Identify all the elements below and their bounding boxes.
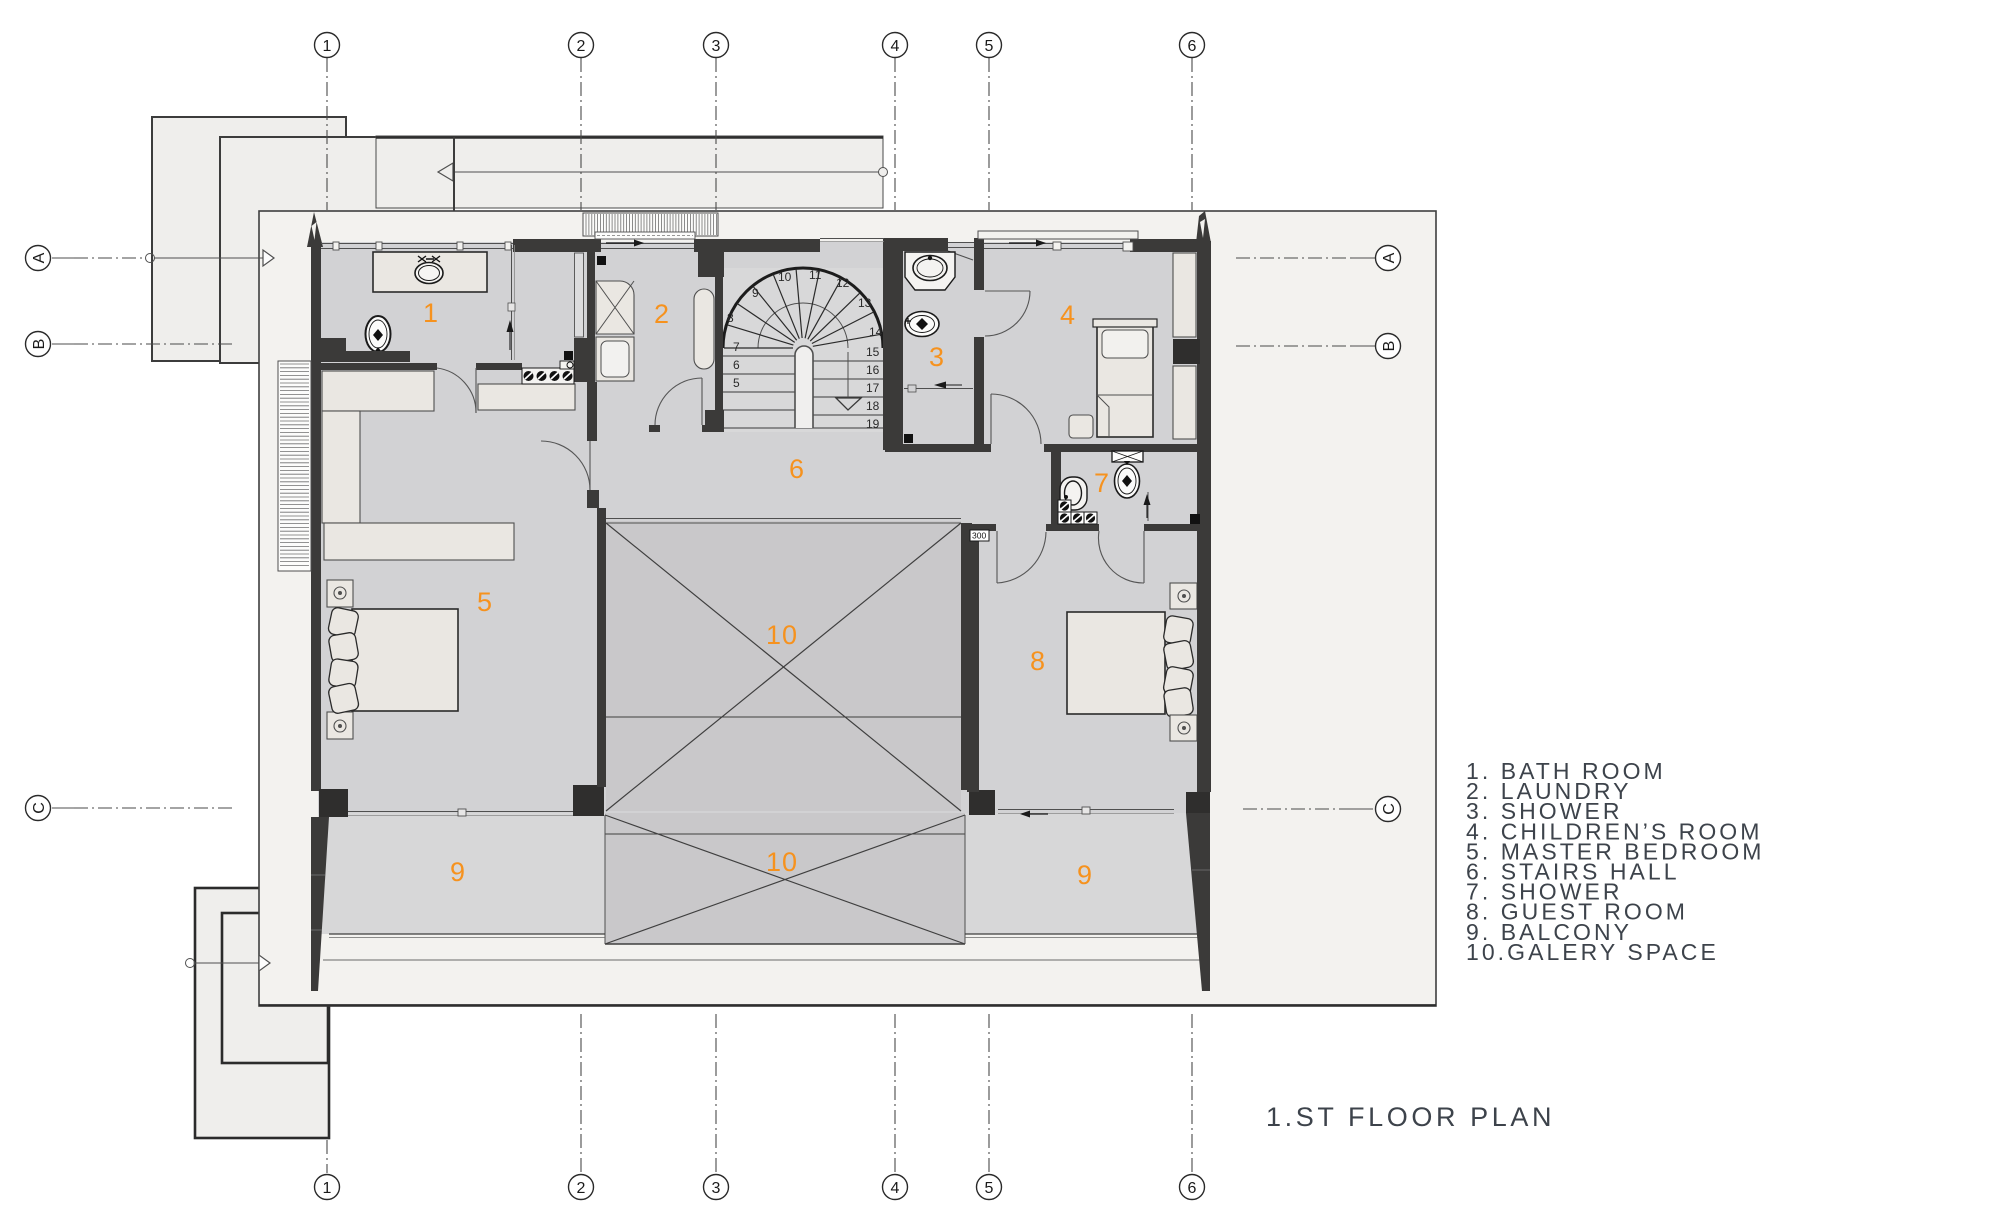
svg-text:18: 18 <box>866 399 880 413</box>
svg-text:5: 5 <box>985 38 994 55</box>
svg-text:5: 5 <box>985 1180 994 1197</box>
svg-text:C: C <box>31 802 48 814</box>
svg-text:8: 8 <box>727 311 734 325</box>
svg-text:B: B <box>1381 341 1398 352</box>
svg-text:6: 6 <box>1188 38 1197 55</box>
svg-text:15: 15 <box>866 345 880 359</box>
svg-text:5: 5 <box>733 376 740 390</box>
svg-text:5: 5 <box>477 587 493 617</box>
svg-text:B: B <box>31 339 48 350</box>
svg-text:A: A <box>1381 252 1398 263</box>
svg-text:300: 300 <box>972 531 986 541</box>
svg-text:1: 1 <box>423 298 439 328</box>
svg-text:12: 12 <box>836 276 850 290</box>
svg-text:16: 16 <box>866 363 880 377</box>
svg-text:9: 9 <box>450 857 466 887</box>
svg-text:9: 9 <box>1077 860 1093 890</box>
svg-text:3: 3 <box>712 38 721 55</box>
svg-text:8: 8 <box>1030 646 1046 676</box>
svg-text:2: 2 <box>577 1180 586 1197</box>
svg-text:1: 1 <box>323 1180 332 1197</box>
svg-text:17: 17 <box>866 381 880 395</box>
svg-text:7: 7 <box>1094 468 1110 498</box>
svg-text:6: 6 <box>1188 1180 1197 1197</box>
svg-text:3: 3 <box>712 1180 721 1197</box>
svg-text:10: 10 <box>766 620 798 650</box>
svg-text:2: 2 <box>654 299 670 329</box>
svg-text:A: A <box>31 252 48 263</box>
svg-text:6: 6 <box>733 358 740 372</box>
svg-text:1: 1 <box>323 38 332 55</box>
svg-text:3: 3 <box>929 342 945 372</box>
svg-text:19: 19 <box>866 417 880 431</box>
svg-text:C: C <box>1381 803 1398 815</box>
svg-text:4: 4 <box>891 38 900 55</box>
svg-text:6: 6 <box>789 454 805 484</box>
svg-text:14: 14 <box>869 325 883 339</box>
svg-text:4: 4 <box>891 1180 900 1197</box>
svg-text:10: 10 <box>766 847 798 877</box>
svg-text:7: 7 <box>733 340 740 354</box>
svg-text:4: 4 <box>1060 300 1076 330</box>
svg-text:2: 2 <box>577 38 586 55</box>
svg-text:9: 9 <box>752 286 759 300</box>
svg-text:11: 11 <box>809 268 822 282</box>
svg-text:13: 13 <box>858 296 872 310</box>
svg-text:1.ST FLOOR PLAN: 1.ST FLOOR PLAN <box>1266 1102 1555 1132</box>
svg-text:10.GALERY SPACE: 10.GALERY SPACE <box>1466 939 1719 965</box>
svg-text:10: 10 <box>778 270 792 284</box>
